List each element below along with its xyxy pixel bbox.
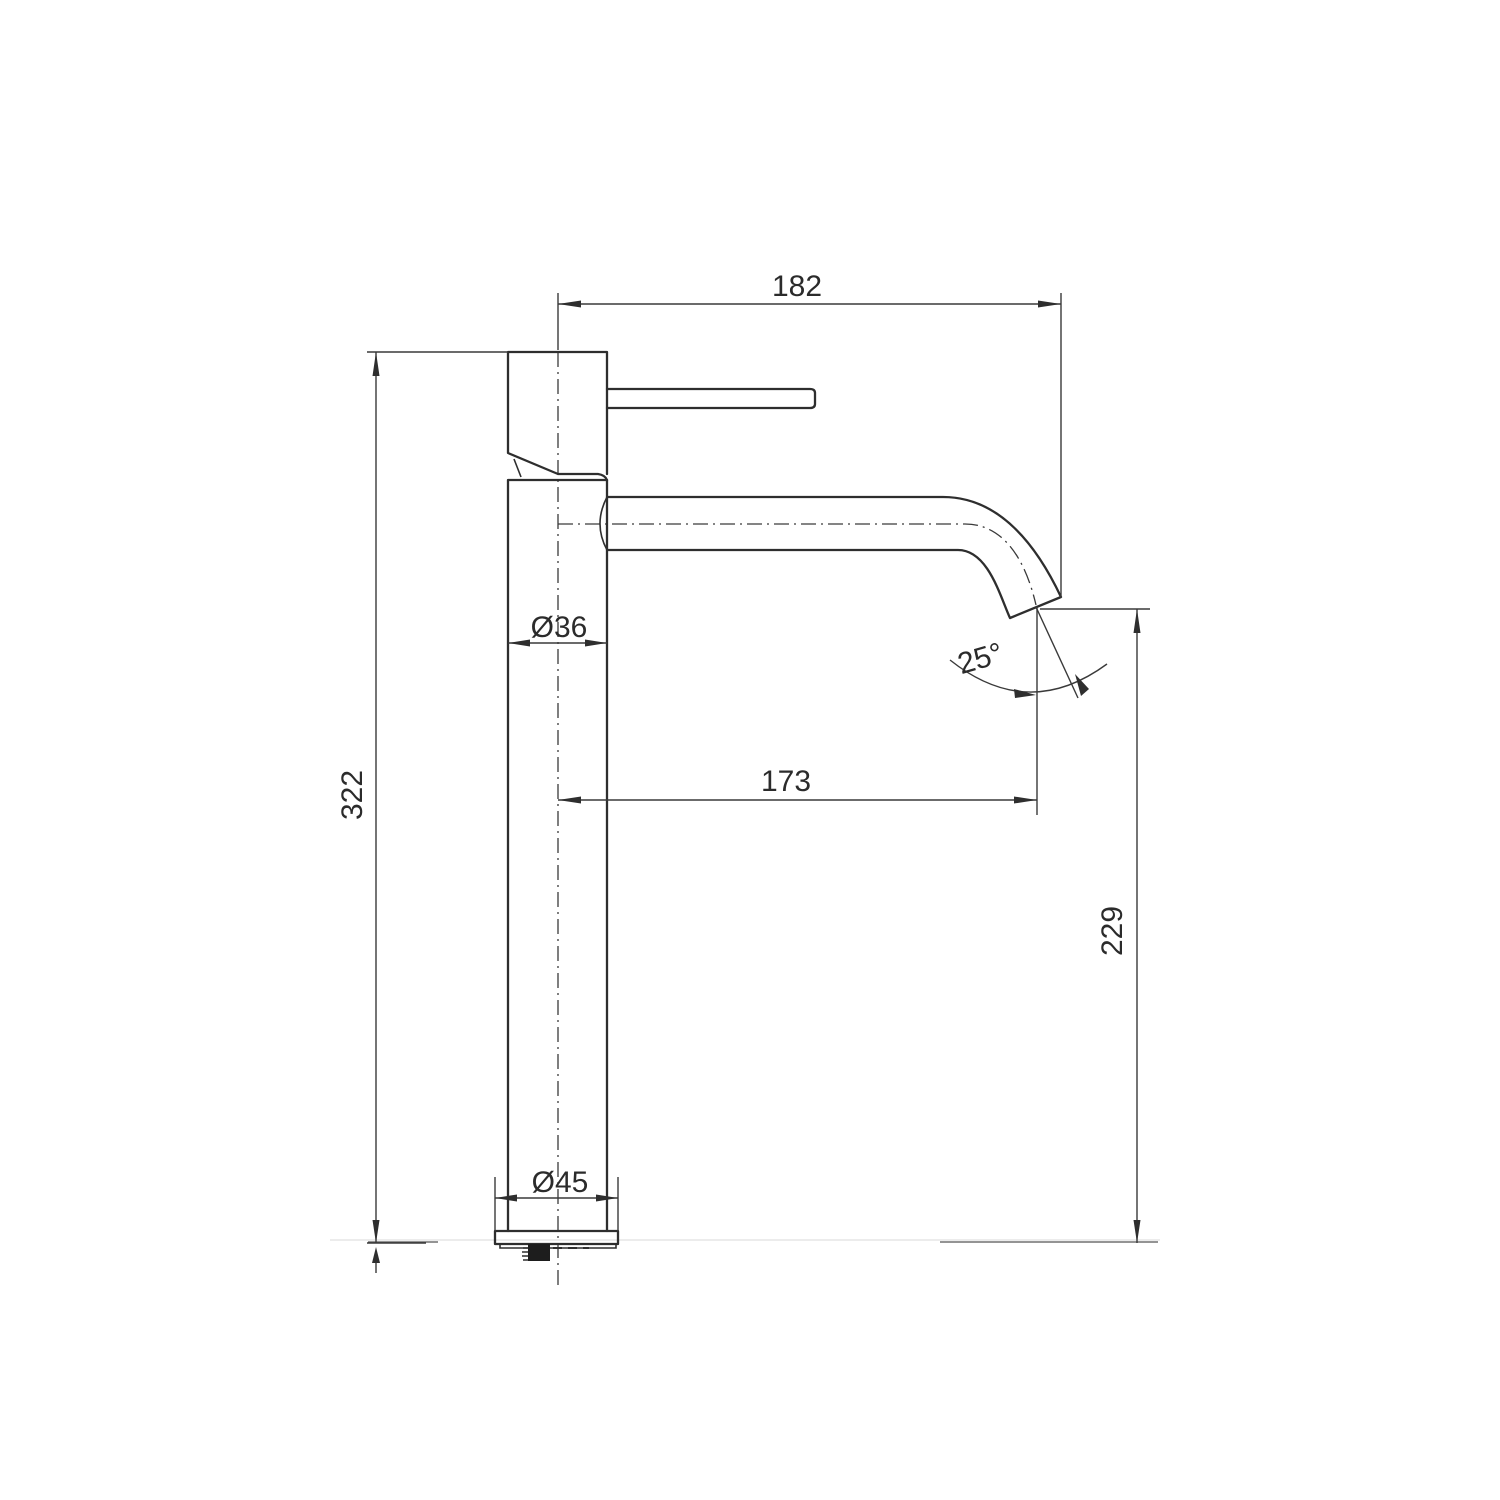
dimension-base-diameter: Ø45 (495, 1166, 618, 1231)
arrowhead (373, 352, 380, 376)
base-flange (495, 1231, 618, 1244)
dimension-322: 322 (336, 352, 508, 1273)
faucet-dimension-drawing: 182 Ø36 322 173 25° (0, 0, 1500, 1500)
stud-thread-ticks (522, 1248, 528, 1260)
technical-drawing-page: 182 Ø36 322 173 25° (0, 0, 1500, 1500)
handle-lever (607, 389, 815, 408)
arrowhead (558, 797, 581, 804)
arrowhead (585, 640, 607, 647)
spout-outline (608, 497, 1061, 618)
fixing-stud (528, 1244, 550, 1261)
arrowhead (1134, 609, 1141, 633)
arrowhead (558, 301, 581, 308)
dimension-body-diameter: Ø36 (508, 611, 607, 647)
dimension-182: 182 (558, 270, 1061, 597)
dim-173-label: 173 (761, 765, 811, 798)
arrowhead (1014, 797, 1037, 804)
dim-322-label: 322 (336, 770, 369, 820)
dim-36-label: Ø36 (531, 611, 588, 644)
arrowhead (372, 1247, 380, 1263)
arrowhead (1014, 689, 1036, 698)
dim-45-label: Ø45 (532, 1166, 589, 1199)
faucet-outline (495, 352, 1061, 1261)
arrowhead (1038, 301, 1061, 308)
centerlines (558, 352, 1036, 1290)
dim-182-label: 182 (772, 270, 822, 303)
spout-centerline (558, 524, 1036, 605)
dimension-229: 229 (1040, 609, 1150, 1243)
dimension-173: 173 (558, 607, 1037, 815)
dim-229-label: 229 (1096, 906, 1129, 956)
dim-angle-label: 25° (954, 637, 1007, 681)
head-bevel-line (514, 459, 521, 477)
arrowhead (495, 1195, 517, 1202)
arrowhead (508, 640, 530, 647)
dimension-spout-angle: 25° (950, 607, 1107, 698)
